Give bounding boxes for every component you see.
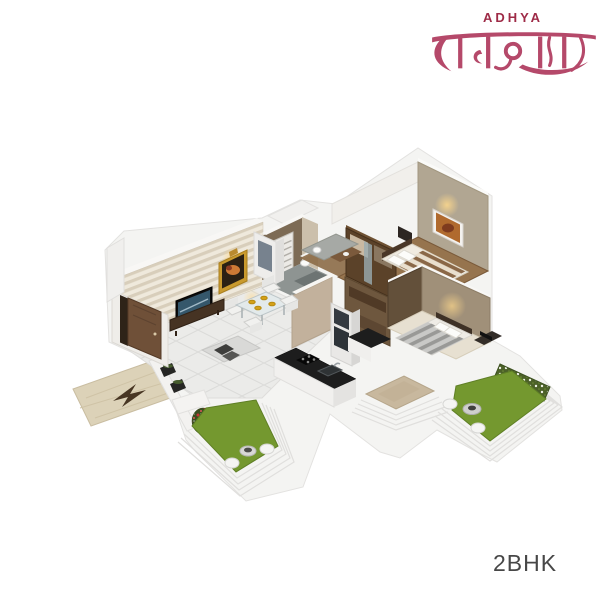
garden-table — [463, 404, 481, 415]
toilet — [313, 247, 321, 253]
unit-type-caption: 2BHK — [493, 550, 557, 577]
garden-chair — [225, 458, 239, 468]
garden-table — [240, 446, 256, 456]
garden-chair — [443, 399, 457, 409]
floorplan-render — [0, 0, 609, 607]
garden-chair — [471, 423, 485, 433]
garden-chair — [260, 444, 274, 454]
